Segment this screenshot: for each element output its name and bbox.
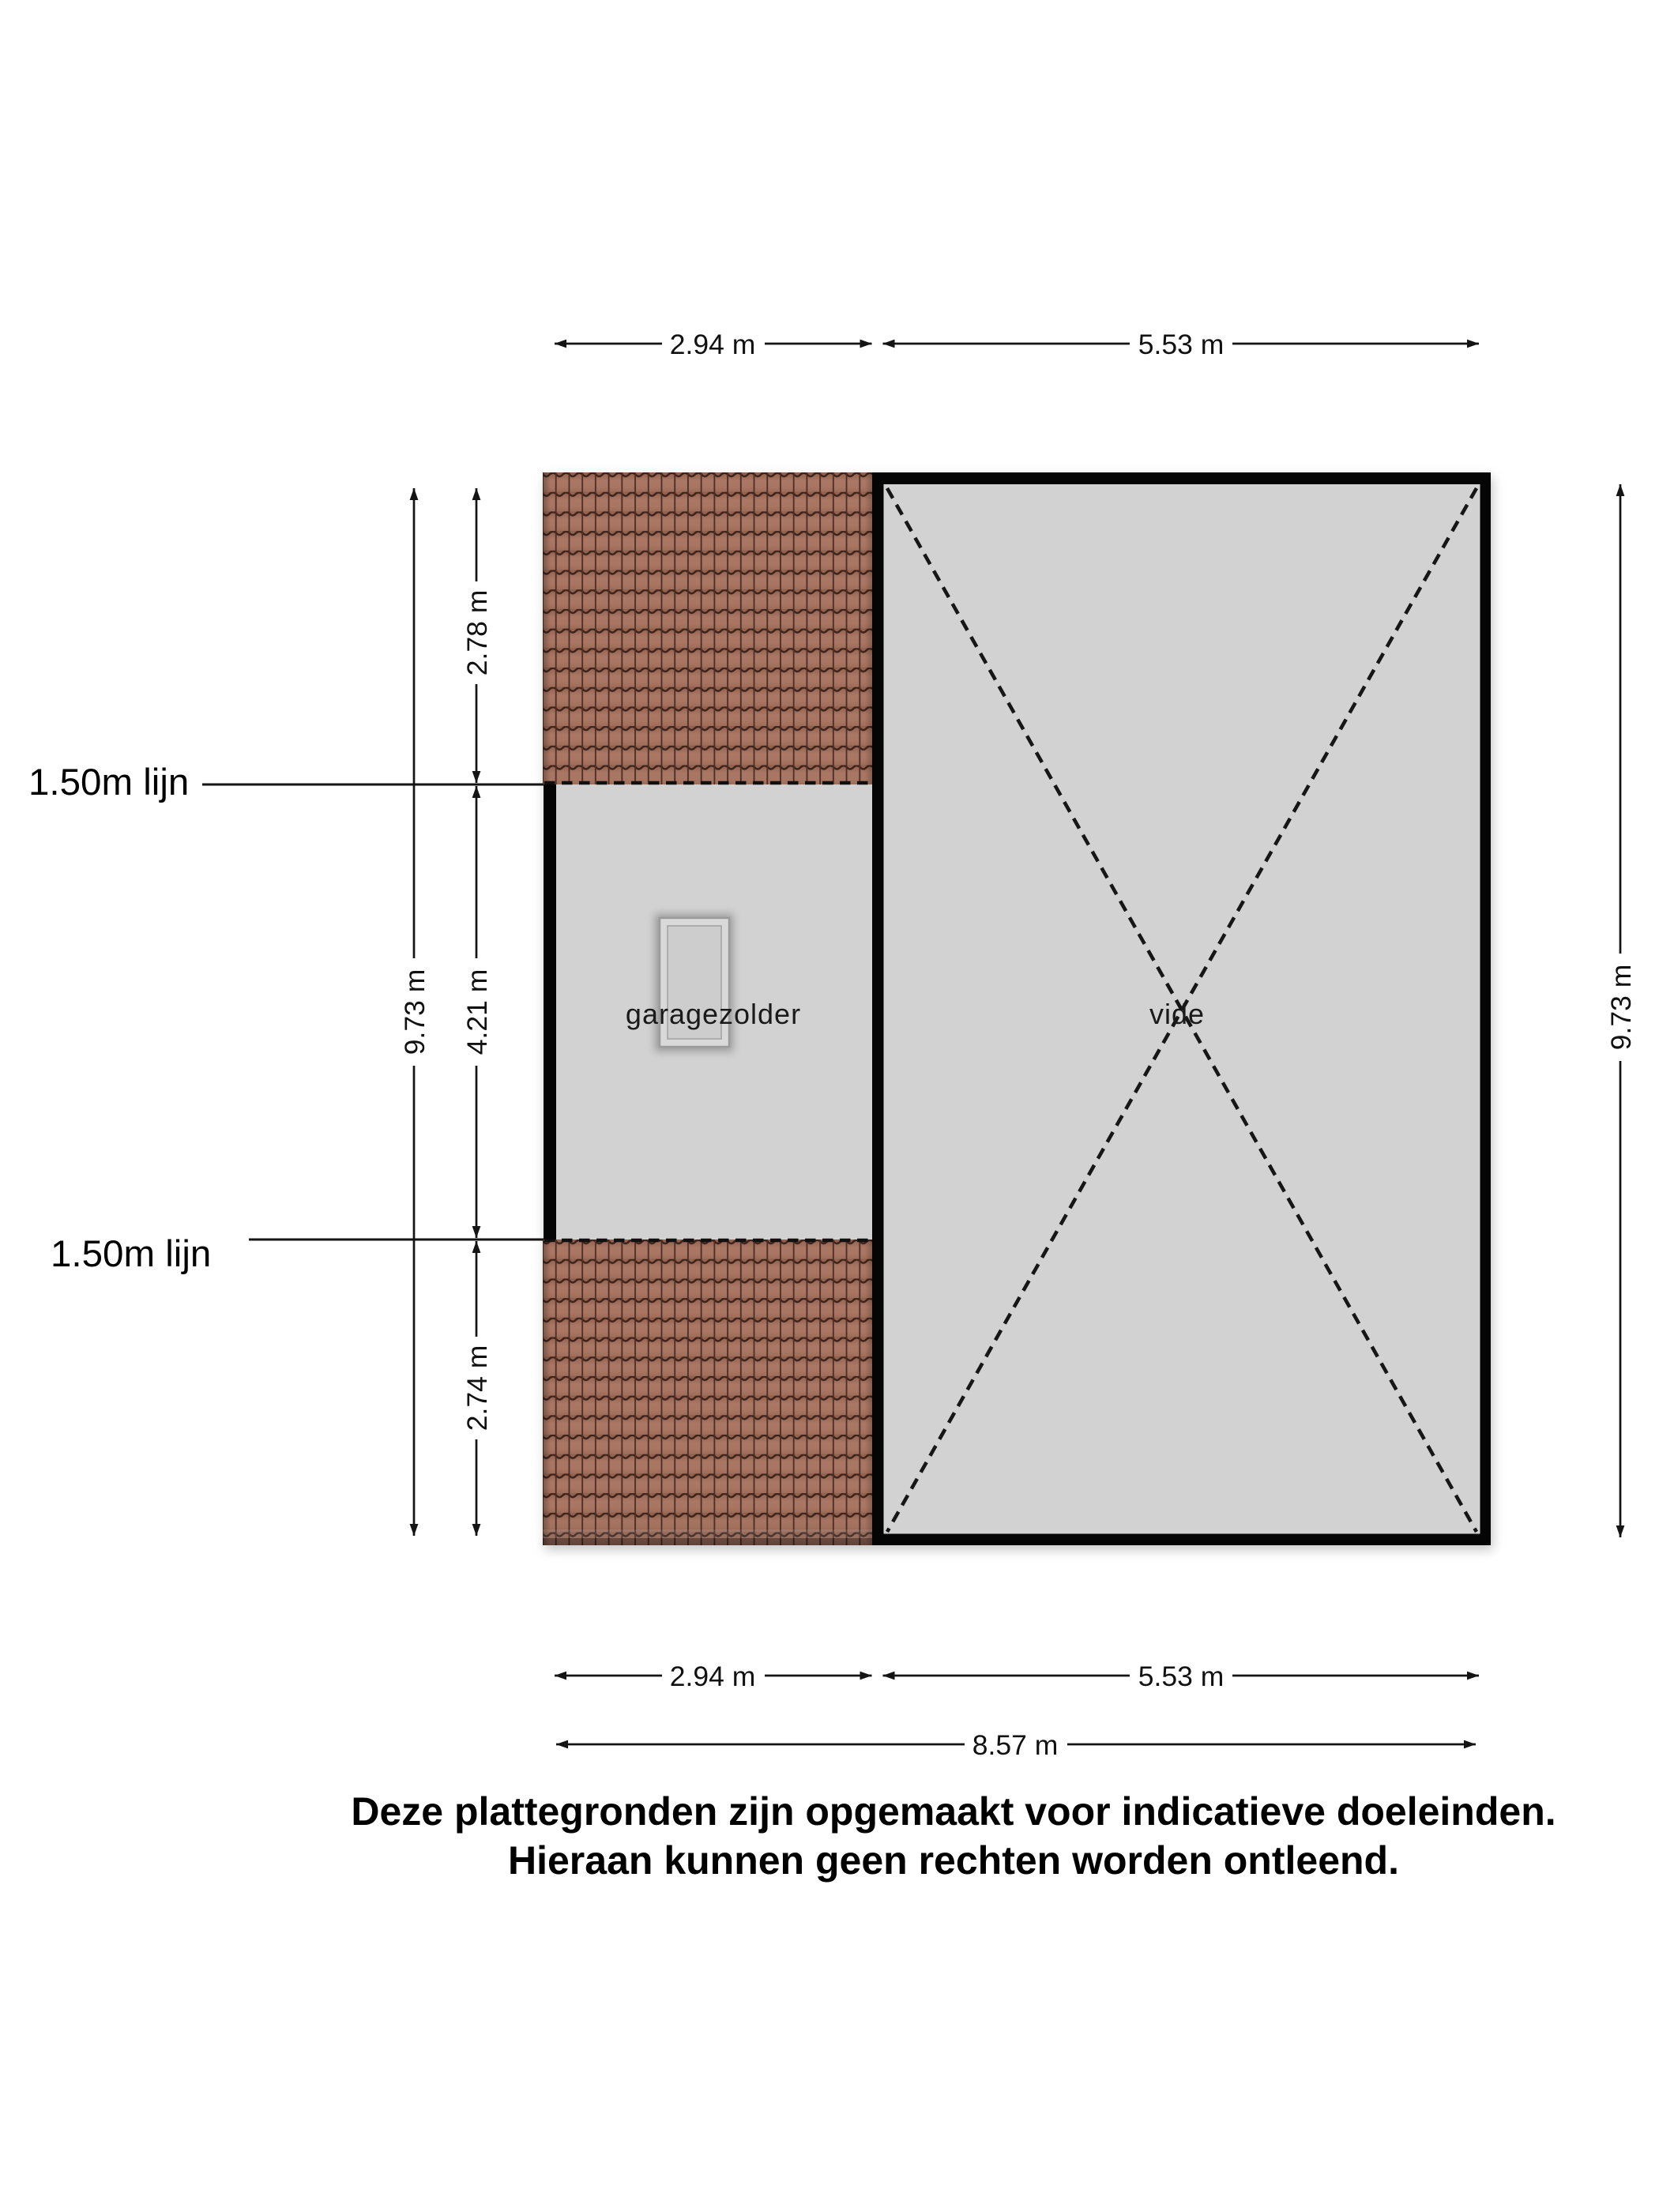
svg-text:2.94 m: 2.94 m <box>670 1661 756 1692</box>
svg-text:8.57 m: 8.57 m <box>972 1729 1059 1761</box>
svg-text:5.53 m: 5.53 m <box>1138 329 1224 360</box>
svg-text:2.78 m: 2.78 m <box>461 590 493 676</box>
svg-text:Hieraan kunnen geen rechten wo: Hieraan kunnen geen rechten worden ontle… <box>508 1838 1399 1883</box>
svg-text:2.74 m: 2.74 m <box>461 1345 493 1431</box>
svg-text:1.50m lijn: 1.50m lijn <box>51 1233 211 1275</box>
svg-text:1.50m lijn: 1.50m lijn <box>28 762 189 803</box>
svg-text:garagezolder: garagezolder <box>626 998 801 1030</box>
svg-text:4.21 m: 4.21 m <box>461 969 493 1055</box>
svg-text:9.73 m: 9.73 m <box>399 969 431 1055</box>
svg-text:Deze plattegronden zijn opgema: Deze plattegronden zijn opgemaakt voor i… <box>351 1789 1556 1834</box>
svg-text:5.53 m: 5.53 m <box>1138 1661 1224 1692</box>
svg-text:2.94 m: 2.94 m <box>670 329 756 360</box>
svg-text:9.73 m: 9.73 m <box>1605 965 1637 1051</box>
svg-text:vide: vide <box>1149 998 1205 1030</box>
